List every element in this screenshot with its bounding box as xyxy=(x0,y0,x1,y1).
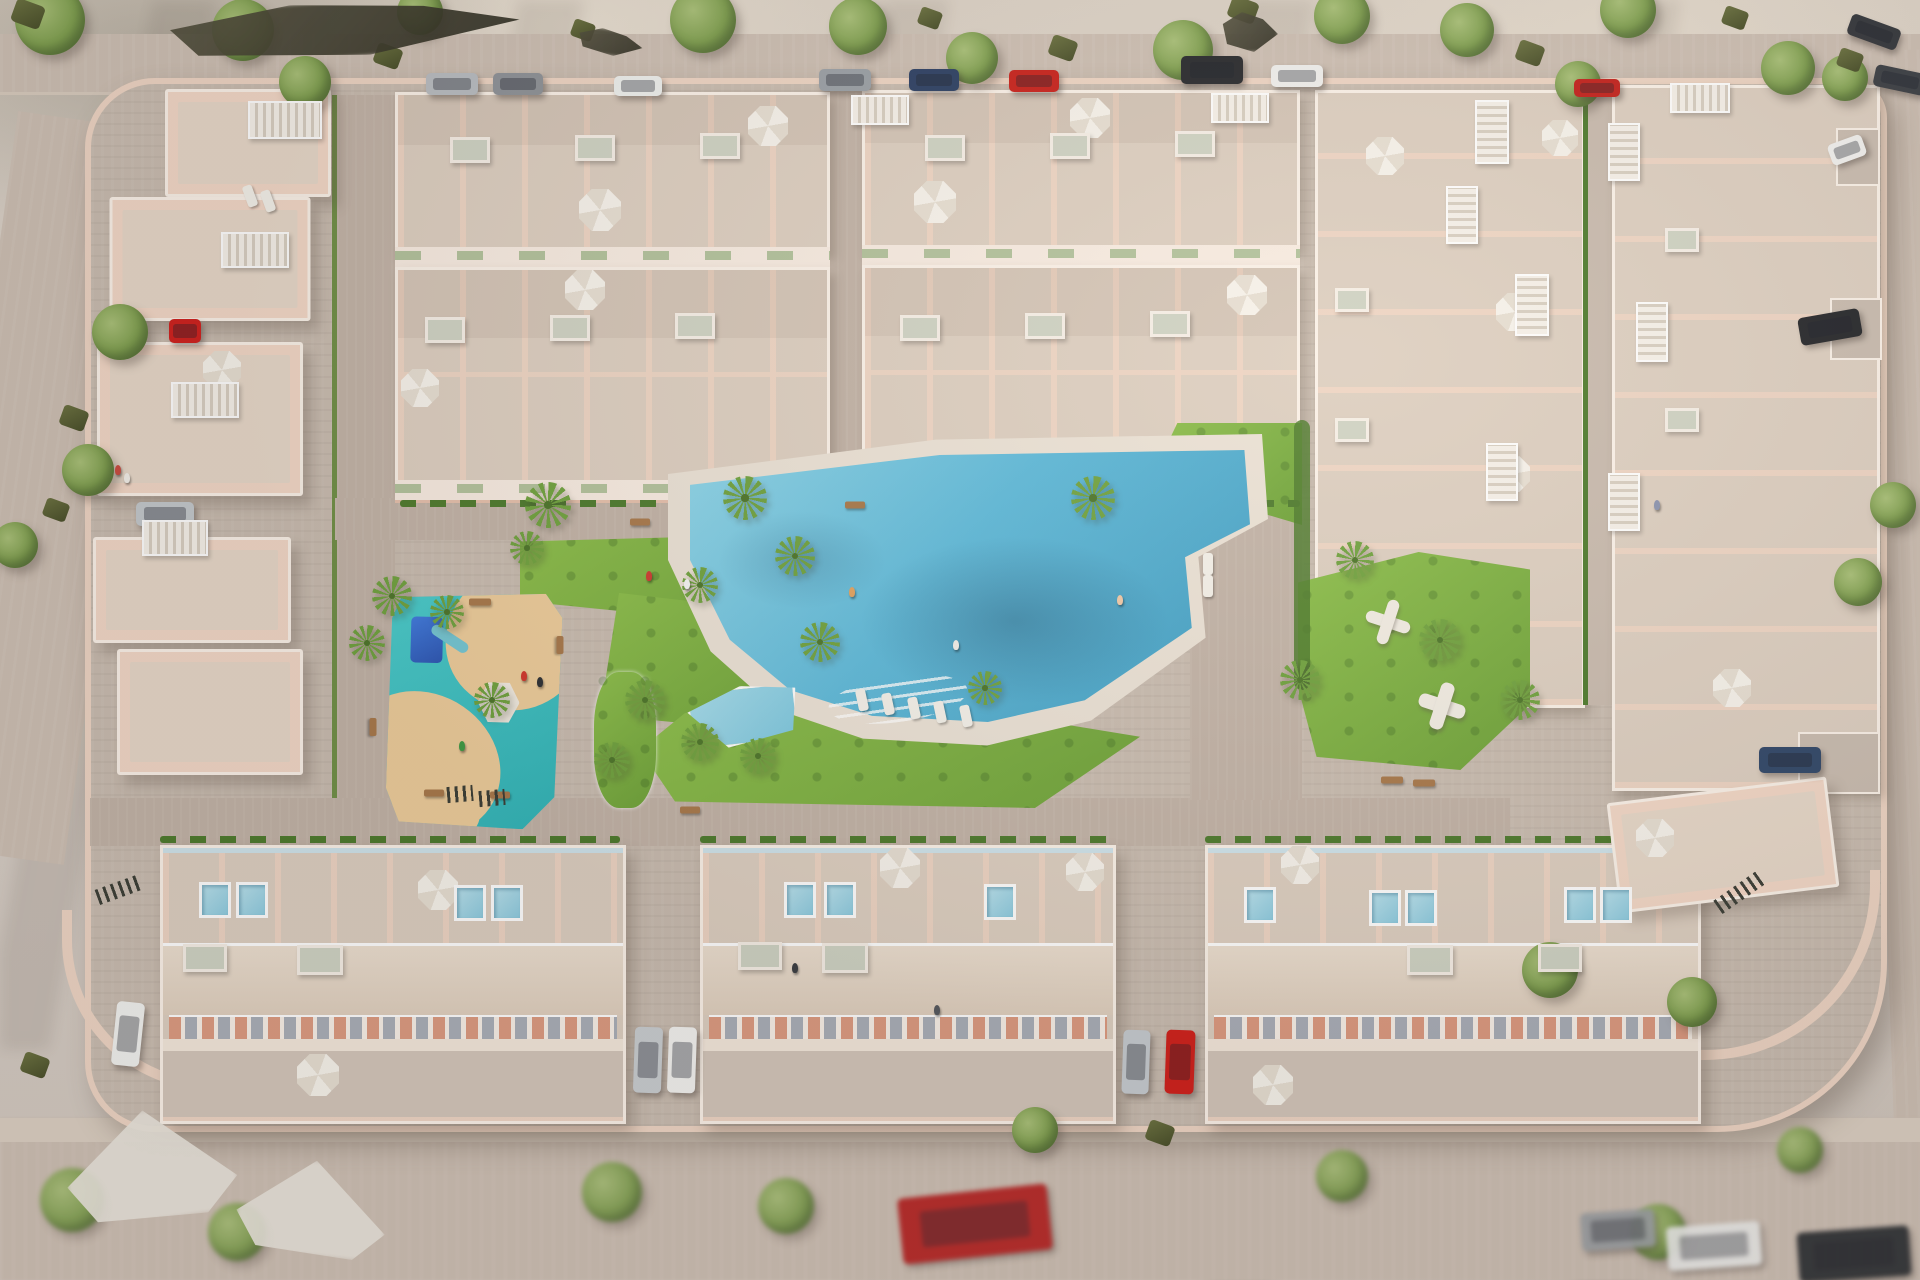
apartment-block-south-1 xyxy=(160,845,626,1124)
paved-plaza xyxy=(1190,525,1302,800)
hedge-strip xyxy=(1294,420,1310,690)
townhouse-block-a xyxy=(395,92,830,500)
hedgerow xyxy=(1205,836,1695,843)
townhouse-row-terraces xyxy=(395,267,830,486)
play-structure xyxy=(410,616,443,663)
driveway-notch xyxy=(1830,298,1882,360)
roof-terraces xyxy=(703,848,1113,946)
roof-terraces xyxy=(163,848,623,946)
playground xyxy=(385,590,563,830)
eave xyxy=(1208,1039,1698,1051)
roof xyxy=(163,946,623,1015)
clerestory-windows xyxy=(1214,1015,1692,1041)
roof-terraces xyxy=(1208,848,1698,946)
internal-street-west xyxy=(332,95,395,845)
hedgerow xyxy=(700,836,1110,843)
apartment-block-south-2 xyxy=(700,845,1116,1124)
hedge-island xyxy=(594,672,656,808)
eave xyxy=(703,1039,1113,1051)
clerestory-windows xyxy=(169,1015,617,1041)
aerial-render-scene xyxy=(0,0,1920,1280)
lawn xyxy=(1298,552,1530,770)
clerestory-windows xyxy=(709,1015,1107,1041)
apartment-block-south-3 xyxy=(1205,845,1701,1124)
hedgerow xyxy=(160,836,620,843)
driveway-notch xyxy=(1836,128,1880,186)
driveway-notch xyxy=(1798,732,1880,794)
townhouse-strip-east-2 xyxy=(1612,85,1880,791)
road-south xyxy=(0,1118,1920,1280)
roof xyxy=(703,946,1113,1015)
townhouse-row-terraces xyxy=(862,90,1300,251)
townhouse-row-terraces xyxy=(395,92,830,253)
front-yards xyxy=(703,1051,1113,1121)
front-yards xyxy=(163,1051,623,1121)
roof xyxy=(1208,946,1698,1015)
front-yards xyxy=(1208,1051,1698,1121)
eave xyxy=(163,1039,623,1051)
